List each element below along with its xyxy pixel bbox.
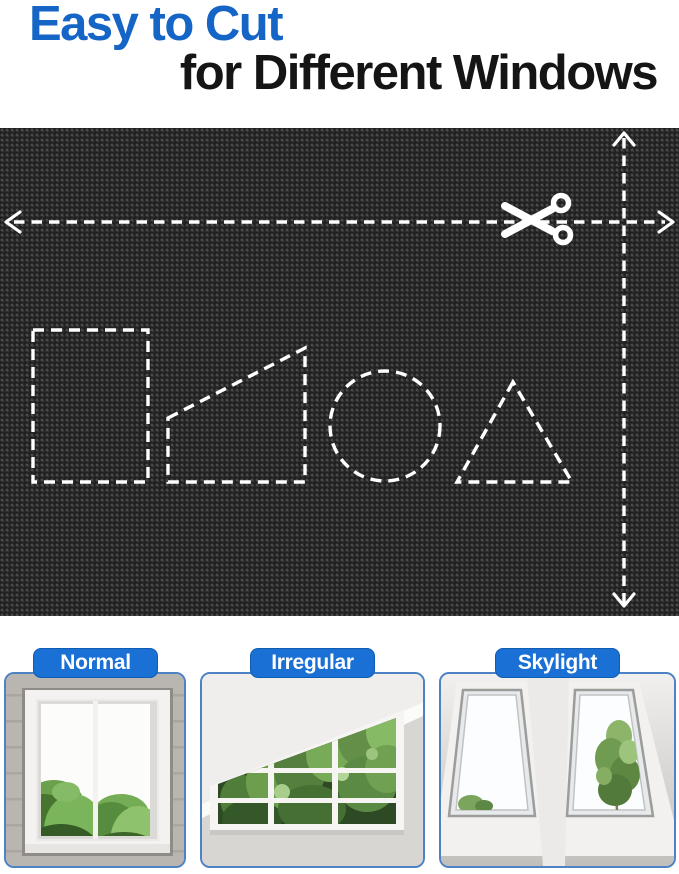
window-card-irregular: [200, 672, 425, 868]
window-type-label-skylight: Skylight: [495, 648, 620, 678]
cut-shape-triangle: [457, 382, 572, 482]
fabric-swatch: [0, 128, 679, 616]
cut-shape-rectangle: [33, 330, 148, 482]
cut-shape-trapezoid: [168, 348, 305, 482]
title-line-2: for Different Windows: [180, 47, 657, 101]
scissors-icon: [505, 196, 571, 243]
normal-window-photo: [6, 674, 184, 866]
skylight-window-photo: [441, 674, 674, 866]
window-type-label-normal: Normal: [33, 648, 158, 678]
cut-shape-circle: [330, 371, 440, 481]
width-cut-arrow-horizontal: [6, 212, 673, 232]
window-type-label-irregular: Irregular: [250, 648, 375, 678]
product-infographic: Easy to Cut for Different Windows: [0, 0, 679, 874]
window-card-skylight: [439, 672, 676, 868]
title-line-1: Easy to Cut: [29, 0, 282, 52]
cut-guide-overlay: [0, 128, 679, 616]
height-cut-arrow-vertical: [614, 133, 634, 606]
irregular-window-photo: [202, 674, 423, 866]
window-card-normal: [4, 672, 186, 868]
